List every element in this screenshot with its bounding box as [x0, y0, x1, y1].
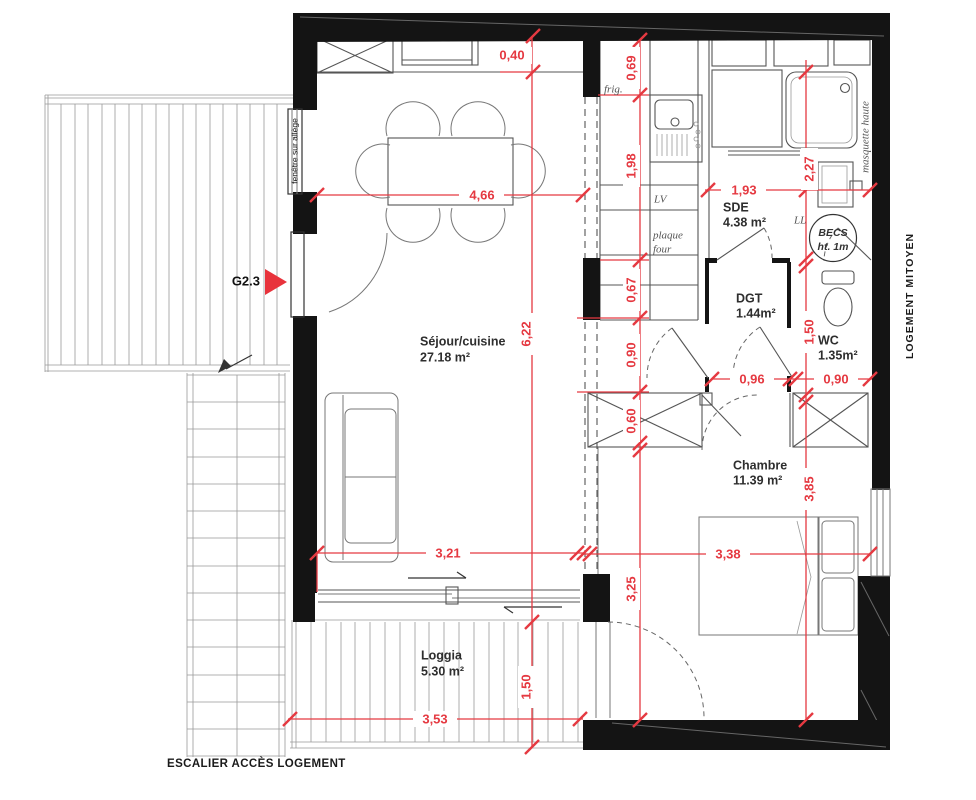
floor-plan-drawing: fenêtre sur allège: [0, 0, 976, 800]
room-sde-area: 4.38 m²: [723, 215, 766, 229]
hob-label-2: four: [653, 244, 672, 256]
adjacent-unit-label: LOGEMENT MITOYEN: [904, 233, 916, 359]
dim-1-98: 1,98: [623, 153, 638, 178]
hob-label-1: plaque: [652, 230, 683, 242]
dim-0-67: 0,67: [623, 277, 638, 302]
slide-direction-arrows: [408, 572, 562, 613]
dim-1-50-wc: 1,50: [801, 319, 816, 344]
sill-window: fenêtre sur allège: [288, 109, 302, 194]
dim-3-85: 3,85: [801, 476, 816, 501]
dim-3-53: 3,53: [422, 711, 447, 726]
room-sejour-name: Séjour/cuisine: [420, 334, 505, 348]
sliding-door: [318, 572, 580, 613]
bedroom-window: [871, 489, 890, 576]
room-loggia-name: Loggia: [421, 648, 463, 662]
room-sejour-area: 27.18 m²: [420, 350, 470, 364]
loggia-decking: [290, 620, 583, 748]
room-dgt-area: 1.44m²: [736, 306, 776, 320]
sofa: [325, 393, 398, 562]
room-chambre-area: 11.39 m²: [733, 473, 782, 487]
dim-1-50-loggia: 1,50: [518, 674, 533, 699]
dim-1-93: 1,93: [731, 182, 756, 197]
doors: [291, 228, 871, 718]
partition-label: masquette haute: [860, 101, 872, 173]
dim-0-90-wc: 0,90: [823, 371, 848, 386]
dim-0-69: 0,69: [623, 55, 638, 80]
dim-0-60: 0,60: [623, 408, 638, 433]
room-sde-name: SDE: [723, 200, 749, 214]
window-sill-label: fenêtre sur allège: [289, 118, 299, 184]
shower-tray: [786, 72, 857, 148]
floor-plan-page: fenêtre sur allège: [0, 0, 976, 800]
dishwasher-label: LV: [653, 194, 668, 206]
dim-4-66: 4,66: [469, 187, 494, 202]
bed: [699, 517, 858, 635]
access-stairs: [187, 373, 285, 757]
vanity-unit: [818, 162, 862, 207]
dim-6-22: 6,22: [518, 321, 533, 346]
stairs-caption: ESCALIER ACCÈS LOGEMENT: [167, 757, 346, 770]
walls: [293, 13, 890, 750]
entry-ref-label: G2.3: [232, 273, 260, 288]
water-heater-height-label: ht. 1m: [818, 241, 849, 253]
dimension-labels: 0,40 0,69 1,98 4,66 1,93 2,27 6,22 0,67 …: [413, 47, 858, 727]
room-wc-name: WC: [818, 333, 839, 347]
dashed-break-lines: [585, 97, 597, 574]
room-loggia-area: 5.30 m²: [421, 664, 464, 678]
fridge-label: frig.: [604, 84, 623, 96]
dining-chairs: [356, 102, 546, 243]
dim-0-96: 0,96: [739, 371, 764, 386]
dim-2-27: 2,27: [801, 156, 816, 181]
dim-3-38: 3,38: [715, 546, 740, 561]
room-dgt-name: DGT: [736, 291, 763, 305]
entry-door-leaf: [291, 232, 304, 317]
dim-3-25: 3,25: [623, 576, 638, 601]
dim-3-21: 3,21: [435, 545, 460, 560]
dim-0-40-top: 0,40: [499, 47, 524, 62]
room-chambre-name: Chambre: [733, 458, 787, 472]
water-heater-label: BECS: [818, 227, 847, 239]
entry-arrow-icon: [265, 269, 287, 295]
toilet: [822, 271, 854, 326]
kitchen-cabinets: [317, 37, 702, 320]
exterior-deck: [45, 95, 293, 373]
room-wc-area: 1.35m²: [818, 348, 858, 362]
washer-label: LL: [793, 215, 806, 227]
dim-0-90-corridor: 0,90: [623, 342, 638, 367]
kitchen-sink: [650, 95, 702, 162]
